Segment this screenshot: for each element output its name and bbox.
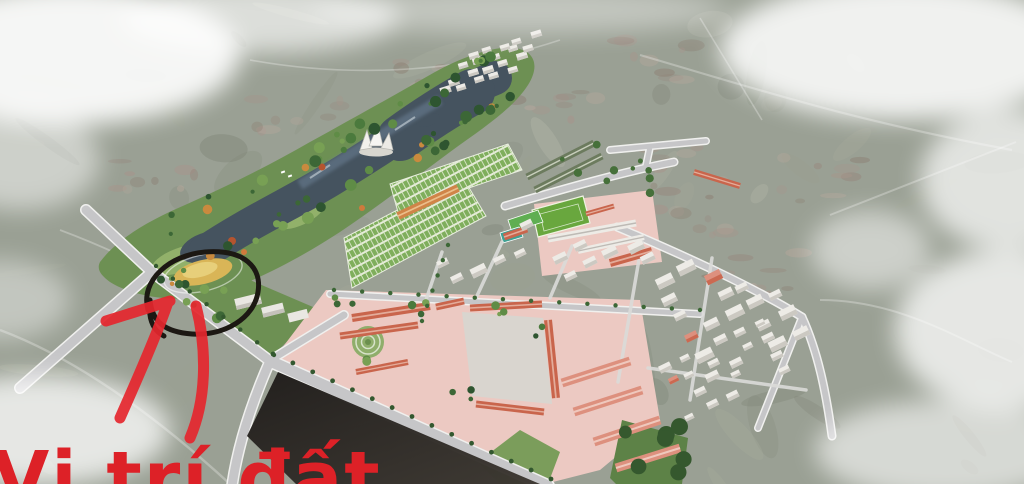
boulevard-tree: [670, 306, 674, 310]
tree: [278, 221, 288, 231]
tree-mass: [671, 418, 688, 435]
boulevard-tree: [446, 243, 450, 247]
village-patch: [669, 75, 694, 84]
village-patch: [607, 37, 634, 45]
boulevard-tree: [420, 319, 424, 323]
boulevard-tree: [489, 450, 494, 455]
tree: [345, 179, 357, 191]
boulevard-tree: [698, 308, 702, 312]
cloud: [810, 210, 930, 290]
tree: [369, 123, 381, 135]
village-patch: [556, 102, 573, 108]
pavilion: [359, 205, 365, 211]
tree: [388, 119, 397, 128]
tree: [169, 232, 173, 236]
tree: [646, 174, 654, 182]
boulevard-tree: [350, 387, 355, 392]
boulevard-tree: [388, 291, 392, 295]
boulevard-tree: [613, 303, 617, 307]
village-patch: [705, 195, 713, 200]
village-patch: [251, 122, 262, 132]
campus-tree: [449, 389, 455, 395]
village-patch: [586, 92, 605, 104]
village-patch: [650, 183, 657, 190]
boulevard-tree: [435, 273, 439, 277]
tree: [220, 286, 228, 294]
village-patch: [393, 62, 409, 73]
tree: [479, 59, 483, 63]
village-patch: [654, 68, 675, 76]
tree: [560, 157, 565, 162]
village-patch: [290, 117, 303, 125]
boulevard-tree: [501, 297, 505, 301]
village-patch: [123, 185, 133, 194]
tree: [398, 101, 404, 107]
tree: [645, 167, 652, 174]
tree: [277, 212, 282, 217]
tree: [430, 96, 441, 107]
village-patch: [795, 199, 805, 204]
campus-tree: [467, 386, 474, 393]
village-patch: [781, 286, 793, 291]
village-patch: [693, 224, 707, 233]
boulevard-tree: [310, 369, 315, 374]
boulevard-tree: [330, 378, 335, 383]
tree: [424, 83, 429, 88]
boulevard-tree: [410, 414, 415, 419]
tree: [157, 276, 165, 284]
tree: [450, 73, 460, 83]
tree: [257, 175, 268, 186]
tree: [346, 133, 357, 144]
village-patch: [834, 164, 860, 173]
boulevard-tree: [585, 302, 589, 306]
campus-tree: [408, 301, 416, 309]
tree-mass: [619, 426, 632, 439]
tree: [314, 142, 325, 153]
boulevard-tree: [332, 288, 336, 292]
campus-tree: [418, 311, 425, 318]
boulevard-tree: [272, 353, 276, 357]
campus-tree: [539, 324, 546, 331]
village-patch: [831, 173, 852, 179]
campus-tree: [349, 301, 355, 307]
tree: [439, 141, 448, 150]
village-patch: [124, 171, 135, 176]
boulevard-tree: [444, 294, 448, 298]
tree: [309, 155, 321, 167]
boulevard-tree: [188, 289, 192, 293]
tree: [485, 51, 496, 62]
village-patch: [850, 157, 870, 163]
village-patch: [776, 185, 787, 194]
village-patch: [679, 47, 685, 52]
campus-tree: [334, 300, 341, 307]
tree: [631, 166, 636, 171]
village-patch: [670, 207, 691, 219]
tree: [414, 154, 422, 162]
tree: [474, 105, 484, 115]
village-patch: [777, 153, 790, 163]
tree: [295, 200, 300, 205]
tree: [341, 147, 347, 153]
village-patch: [567, 116, 574, 124]
village-patch: [271, 116, 281, 125]
tree: [610, 166, 618, 174]
boulevard-tree: [441, 258, 445, 262]
boulevard-tree: [360, 289, 364, 293]
boulevard-tree: [473, 295, 477, 299]
village-patch: [571, 90, 589, 94]
village-patch: [820, 193, 846, 198]
tree: [168, 212, 174, 218]
village-patch: [760, 268, 787, 273]
campus-tree: [500, 308, 507, 315]
village-patch: [108, 159, 132, 164]
boulevard-tree: [238, 327, 242, 331]
village-patch: [151, 177, 158, 185]
village-patch: [785, 248, 812, 257]
tree: [334, 132, 340, 138]
campus-tree: [468, 397, 473, 402]
tree: [440, 88, 449, 97]
village-patch: [655, 187, 681, 196]
tree: [183, 298, 191, 306]
boulevard-tree: [469, 441, 474, 446]
boulevard-tree: [641, 305, 645, 309]
tree: [223, 241, 233, 251]
village-patch: [814, 163, 822, 169]
boulevard-tree: [255, 340, 259, 344]
tree: [303, 195, 310, 202]
boulevard-tree: [370, 396, 375, 401]
village-patch: [556, 93, 577, 100]
tree: [485, 105, 495, 115]
tree: [421, 135, 431, 145]
tree-mass: [657, 430, 674, 447]
boulevard-tree: [390, 405, 395, 410]
village-patch: [713, 228, 739, 238]
boulevard-tree: [509, 459, 514, 464]
tree: [205, 206, 210, 211]
boulevard-tree: [221, 315, 225, 319]
boulevard-tree: [549, 477, 554, 482]
campus-tree: [332, 294, 339, 301]
masterplan-scene: [0, 0, 1024, 484]
tree: [355, 119, 366, 130]
boulevard-tree: [171, 277, 175, 281]
tree: [593, 141, 601, 149]
tree: [462, 119, 467, 124]
boulevard-tree: [529, 468, 534, 473]
garden-center: [365, 339, 371, 345]
tree: [646, 189, 654, 197]
campus-courtyard: [462, 312, 552, 404]
tree-mass: [670, 464, 686, 480]
village-patch: [190, 169, 198, 180]
village-patch: [728, 254, 754, 261]
campus-tree: [491, 301, 500, 310]
village-patch: [130, 177, 145, 187]
campus-tree: [362, 357, 371, 366]
caption-text: Vị trí đất: [0, 442, 382, 484]
tree: [495, 104, 499, 108]
boulevard-tree: [430, 288, 434, 292]
boulevard-tree: [429, 423, 434, 428]
pavilion: [241, 249, 247, 255]
boulevard-tree: [416, 292, 420, 296]
village-patch: [336, 96, 343, 106]
tree: [170, 282, 175, 287]
tree-mass: [631, 459, 647, 475]
boulevard-tree: [557, 300, 561, 304]
tree: [302, 212, 314, 224]
village-patch: [705, 215, 712, 222]
campus-tree: [533, 333, 538, 338]
aerial-masterplan-photo: Vị trí đất: [0, 0, 1024, 484]
tree: [603, 177, 610, 184]
tree: [206, 194, 212, 200]
tree: [431, 146, 440, 155]
boulevard-tree: [425, 304, 429, 308]
tree: [175, 280, 183, 288]
boulevard-tree: [529, 299, 533, 303]
village-patch: [320, 113, 336, 120]
tree: [302, 164, 310, 172]
tree: [200, 284, 210, 294]
tree: [506, 92, 515, 101]
boulevard-tree: [449, 432, 454, 437]
tree: [340, 139, 345, 144]
boulevard-tree: [290, 361, 295, 366]
village-patch: [177, 185, 184, 192]
tree: [638, 158, 643, 163]
tree: [181, 268, 186, 273]
tree: [251, 190, 255, 194]
village-patch: [244, 95, 268, 103]
boulevard-tree: [154, 264, 158, 268]
tree: [365, 166, 373, 174]
tree: [431, 131, 436, 136]
tree: [574, 169, 582, 177]
boulevard-tree: [204, 302, 208, 306]
tree: [252, 238, 259, 245]
village-patch: [630, 52, 638, 62]
tree: [316, 202, 326, 212]
village-patch: [524, 105, 535, 110]
